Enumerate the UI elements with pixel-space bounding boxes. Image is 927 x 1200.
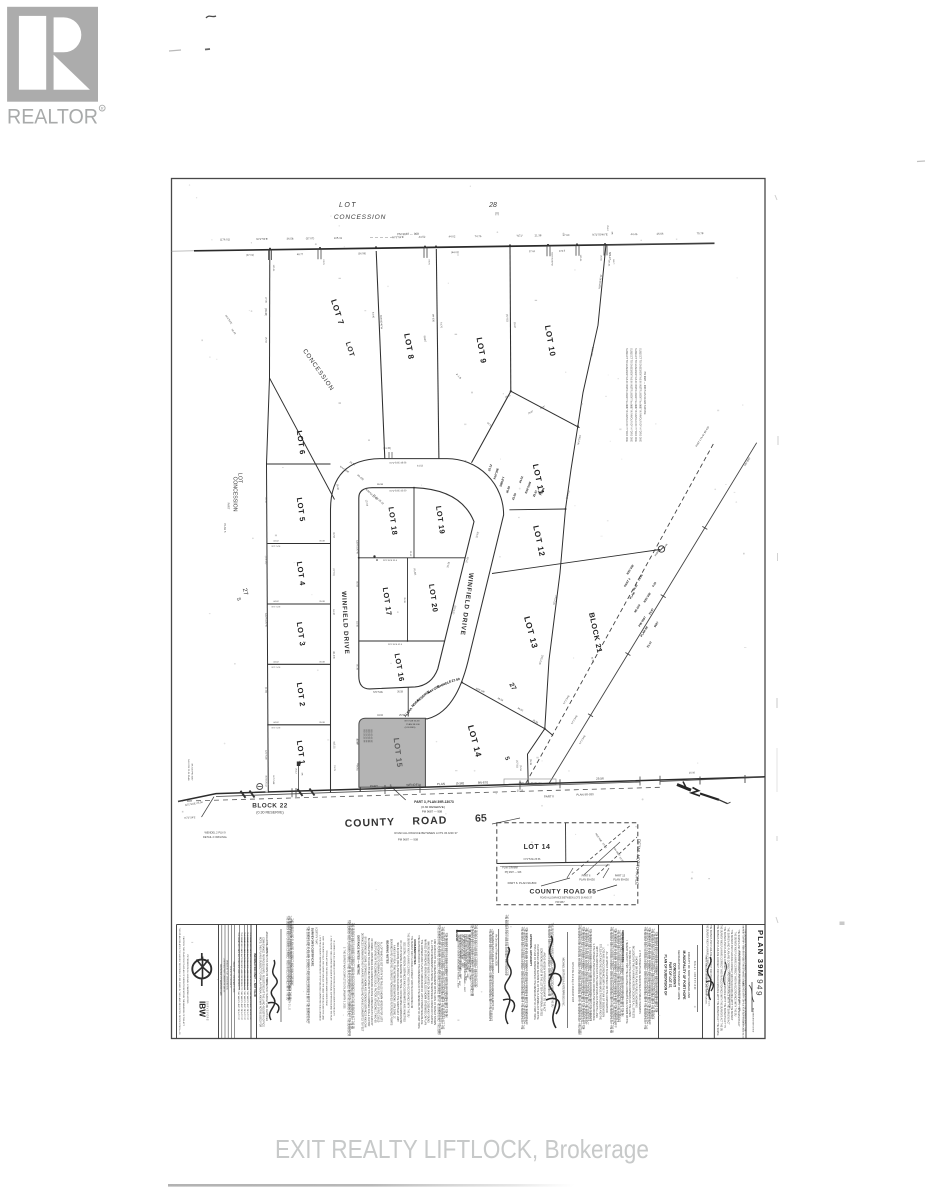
svg-text:2. THE STREETS ARE DEDICATED A: 2. THE STREETS ARE DEDICATED AS PUBLIC H… — [638, 950, 641, 1014]
svg-text:PM 9687 —: PM 9687 — 908 — [398, 838, 419, 842]
svg-text:9R-630: 9R-630 — [332, 651, 334, 659]
svg-text:74.76: 74.76 — [428, 259, 430, 265]
svg-text:PART 13: PART 13 — [615, 874, 626, 878]
svg-text:IS CORRECT IN ACCORDANCE WITH: IS CORRECT IN ACCORDANCE WITH THE REGULA… — [333, 940, 336, 1016]
svg-text:(36.58): (36.58) — [358, 252, 366, 255]
svg-text:(176.01): (176.01) — [220, 237, 230, 241]
svg-text:(37.01): (37.01) — [515, 760, 518, 768]
svg-text:THE SURVEY AND PLAN ARE CORREC: THE SURVEY AND PLAN ARE CORRECT AND IN A… — [291, 918, 294, 986]
svg-text:(0.30 RES): (0.30 RES) — [405, 727, 416, 729]
svg-text:N17°: N17° — [612, 260, 614, 265]
svg-text:(37.07): (37.07) — [306, 236, 315, 240]
svg-text:29.87: 29.87 — [513, 322, 516, 329]
svg-text:CONVEYANCE PURPOSES UNTIL REGI: CONVEYANCE PURPOSES UNTIL REGISTERED AT … — [262, 937, 265, 1027]
svg-text:SEE DETAIL HEREON. DISTANCES: SEE DETAIL HEREON. DISTANCES AND COORDIN… — [402, 942, 405, 1022]
svg-text:THE SURVEY AND PLAN ARE CORREC: THE SURVEY AND PLAN ARE CORRECT AND IN A… — [475, 925, 478, 988]
svg-text:N71°54E 36.58: N71°54E 36.58 — [405, 721, 421, 723]
svg-text:COUNTY ROAD 65: COUNTY ROAD 65 — [530, 889, 597, 896]
svg-text:THE BEARINGS ARE ASTRONOMIC AN: THE BEARINGS ARE ASTRONOMIC AND REFERRED… — [240, 932, 243, 1020]
svg-text:PLAN 99-630: PLAN 99-630 — [579, 878, 595, 882]
svg-text:ROAD ALLOWANCE BETWEEN LOTS: ROAD ALLOWANCE BETWEEN LOTS 36 AND 37 — [394, 831, 458, 835]
svg-text:MUNICIPALITY OF PORT HOPE: MUNICIPALITY OF PORT HOPE — [682, 951, 686, 1001]
svg-text:THE SURVEY AND PLAN ARE CORREC: THE SURVEY AND PLAN ARE CORRECT AND IN A… — [525, 927, 528, 1025]
svg-text:44.02: 44.02 — [273, 662, 279, 664]
svg-text:PM 9687 — 908: PM 9687 — 908 — [397, 232, 419, 236]
svg-text:(37.01): (37.01) — [332, 568, 334, 576]
svg-text:(176.01): (176.01) — [264, 556, 266, 565]
svg-text:COUNTY OF NORTHUMBERLAND: COUNTY OF NORTHUMBERLAND — [687, 952, 691, 998]
svg-text:(37.01): (37.01) — [246, 254, 254, 257]
svg-text:BEARINGS ARE UTM GRID, DERIVED: BEARINGS ARE UTM GRID, DERIVED FROM OBSE… — [390, 939, 393, 1026]
svg-text:1. THE FIELD SURVEY REPRESENTE: 1. THE FIELD SURVEY REPRESENTED BY THIS … — [319, 935, 322, 1022]
svg-text:DETAIL 2 ORIGINAL: DETAIL 2 ORIGINAL — [203, 835, 228, 839]
svg-text:(ii): (ii) — [495, 212, 499, 216]
svg-text:MICHAEL BATTAGLIA ENTERPRISE: MICHAEL BATTAGLIA ENTERPRISES INC. — [562, 958, 565, 1007]
svg-text:27.60: 27.60 — [529, 250, 536, 253]
svg-text:REALTOR: REALTOR — [7, 105, 98, 129]
svg-text:25.12: 25.12 — [295, 768, 297, 774]
svg-text:THE SURVEY AND PLAN ARE CORREC: THE SURVEY AND PLAN ARE CORRECT AND IN A… — [491, 930, 494, 1009]
svg-text:25.56: 25.56 — [355, 765, 357, 771]
svg-text:THE SURVEY AND PLAN ARE CORREC: THE SURVEY AND PLAN ARE CORRECT AND IN A… — [737, 929, 740, 1027]
svg-text:THE SURVEY AND PLAN ARE CORREC: THE SURVEY AND PLAN ARE CORRECT AND IN A… — [352, 923, 355, 1030]
svg-text:PART: PART — [370, 784, 378, 788]
svg-text:R: R — [101, 106, 104, 111]
svg-text:N71°54'E 35.0: N71°54'E 35.0 — [383, 560, 398, 562]
svg-text:25.56: 25.56 — [517, 788, 524, 792]
svg-text:PART II: PART II — [544, 794, 554, 798]
svg-text:PLAN: PLAN — [437, 782, 445, 786]
svg-text:N71°50'40"E: N71°50'40"E — [592, 232, 608, 236]
svg-text:the 2nd day of February 2: the 2nd day of February 2005 — [495, 934, 498, 966]
svg-text:105.31: 105.31 — [608, 260, 610, 267]
svg-text:(0.30 RESERVE): (0.30 RESERVE) — [256, 811, 284, 815]
svg-text:DRAWN BY S.M. CHECKED D: DRAWN BY S.M. CHECKED D.B. — [226, 960, 229, 991]
svg-text:WENDEL 2 PLN 9: WENDEL 2 PLN 9 — [204, 831, 226, 835]
svg-text:LOT: LOT — [339, 202, 357, 209]
svg-text:N71°54'E: N71°54'E — [272, 727, 281, 729]
svg-text:THE SURVEY AND PLAN ARE CORREC: THE SURVEY AND PLAN ARE CORRECT AND IN A… — [734, 932, 737, 1017]
svg-text:CAUTION: THIS PLAN IS NOT A PL: CAUTION: THIS PLAN IS NOT A PLAN OF SUBD… — [182, 936, 185, 1026]
svg-text:105.31: 105.31 — [334, 236, 343, 240]
svg-text:N18°05'40"W: N18°05'40"W — [551, 252, 553, 266]
svg-text:(0.30): (0.30) — [264, 687, 266, 693]
svg-text:35.38: 35.38 — [529, 759, 532, 766]
svg-text:35.38: 35.38 — [319, 662, 325, 664]
svg-text:(5.58): (5.58) — [456, 781, 464, 785]
svg-text:9R: 9R — [301, 773, 303, 776]
svg-text:N71°54'E 45.00: N71°54'E 45.00 — [390, 489, 407, 492]
svg-text:BLOCK 22: BLOCK 22 — [252, 803, 288, 810]
svg-text:25.56: 25.56 — [657, 232, 664, 236]
svg-text:N71°54'E 25.56: N71°54'E 25.56 — [524, 858, 541, 861]
svg-text:MARKED BY STANDARD IRON BARS U: MARKED BY STANDARD IRON BARS UNLESS SHOW… — [423, 939, 426, 1025]
svg-text:RECEIVED AND DEPOSITED: RECEIVED AND DEPOSITED — [752, 1008, 755, 1033]
svg-text:PM 9687 — 908: PM 9687 — 908 — [422, 810, 443, 814]
svg-text:THE SURVEY AND PLAN ARE CORREC: THE SURVEY AND PLAN ARE CORRECT AND IN A… — [551, 923, 554, 1008]
svg-text:PETERBOROUGH LINDSAY 1 CAMP: PETERBOROUGH LINDSAY 1 CAMPBELLFORD — [186, 955, 189, 1004]
svg-text:(35.38): (35.38) — [264, 308, 267, 316]
svg-text:8.: 8. — [390, 784, 393, 788]
svg-text:THE SURVEY AND PLAN ARE CORREC: THE SURVEY AND PLAN ARE CORRECT AND IN A… — [744, 929, 747, 1032]
svg-text:CONCESSION 5: CONCESSION 5 — [673, 963, 677, 987]
svg-text:DATE: DATE — [265, 979, 269, 986]
svg-text:28: 28 — [488, 202, 497, 209]
svg-text:44.02: 44.02 — [377, 715, 383, 717]
svg-text:25.12: 25.12 — [409, 551, 411, 557]
svg-text:44.02: 44.02 — [273, 601, 279, 603]
svg-text:BEARING NOTES: BEARING NOTES — [386, 940, 390, 963]
svg-text:2. THE SURVEY WAS COMPLETED UN: 2. THE SURVEY WAS COMPLETED UNDER MY PER… — [330, 936, 333, 1021]
svg-text:THIS PLAN OF SUBDIVISION OF TH: THIS PLAN OF SUBDIVISION OF THE MUNICIPA… — [533, 944, 536, 1020]
svg-text:65: 65 — [475, 812, 487, 824]
svg-text:(37.01): (37.01) — [505, 314, 508, 322]
svg-text:36.58: 36.58 — [287, 237, 294, 241]
svg-text:THE SURVEY AND PLAN ARE CORREC: THE SURVEY AND PLAN ARE CORRECT AND IN A… — [589, 929, 592, 1022]
svg-text:CONCESSION: CONCESSION — [232, 477, 238, 512]
svg-text:PLAN 99-630: PLAN 99-630 — [613, 878, 629, 882]
svg-text:BY DIVIDING BY 0.3048. DISTAN: BY DIVIDING BY 0.3048. DISTANCES SHOWN A… — [364, 937, 367, 1028]
svg-text:I HEREBY CERTIFY THAT: THE REL: I HEREBY CERTIFY THAT: THE RELATIVE CONS… — [625, 940, 628, 1024]
svg-text:35.38: 35.38 — [319, 541, 325, 543]
svg-text:44.46: 44.46 — [355, 621, 357, 628]
svg-text:MULTIPLYING BY THE COMBINED SC: MULTIPLYING BY THE COMBINED SCALE FACTOR… — [373, 941, 376, 1023]
svg-text:35.38: 35.38 — [264, 497, 266, 504]
svg-text:TITLES ACT AND THE REGULATIONS: TITLES ACT AND THE REGULATIONS MADE THER… — [598, 944, 601, 1020]
svg-text:IBW: IBW — [198, 1001, 207, 1017]
svg-text:COORDINATES TO URBAN ACCURACY: COORDINATES TO URBAN ACCURACY PER SEC 14… — [377, 942, 380, 1023]
svg-text:1. I AM (WE ARE) THE REGISTERE: 1. I AM (WE ARE) THE REGISTERED OWNER(S)… — [628, 947, 631, 1017]
svg-text:THE SURVEY AND PLAN ARE CORREC: THE SURVEY AND PLAN ARE CORRECT AND IN A… — [445, 933, 448, 1018]
svg-text:THE BEARINGS ARE ASTRONOMIC AN: THE BEARINGS ARE ASTRONOMIC AND REFERRED… — [246, 932, 249, 1020]
svg-text:N16 25.12 9R: N16 25.12 9R — [370, 730, 372, 743]
svg-text:SUBJECT TO EASEMENT AS IN: SUBJECT TO EASEMENT AS IN INSTRUMENT No … — [639, 348, 642, 442]
svg-text:WITH THE SURVEYS ACT, THE SURV: WITH THE SURVEYS ACT, THE SURVEYORS ACT,… — [322, 936, 325, 1021]
svg-text:N71°54'E: N71°54'E — [373, 692, 383, 694]
svg-text:44.02: 44.02 — [449, 234, 456, 238]
svg-text:THE CORNERS AND PLAN OF SUBDIV: THE CORNERS AND PLAN OF SUBDIVISION OF L… — [420, 940, 423, 1025]
svg-text:THE SURVEY AND PLAN ARE CORREC: THE SURVEY AND PLAN ARE CORRECT AND IN A… — [723, 927, 726, 1028]
svg-text:N71°: N71° — [517, 234, 523, 238]
svg-text:THE SURVEY AND PLAN ARE CORREC: THE SURVEY AND PLAN ARE CORRECT AND IN A… — [621, 932, 624, 1017]
svg-text:25.56: 25.56 — [600, 255, 602, 261]
svg-text:SURVEYOR'S CERTIFICATE: SURVEYOR'S CERTIFICATE — [311, 928, 315, 967]
svg-text:FILE No 04-118 DISK 27: FILE No 04-118 DISK 27 — [229, 966, 231, 989]
svg-text:25.56: 25.56 — [689, 771, 696, 774]
svg-text:35.38: 35.38 — [319, 601, 325, 603]
svg-text:THE SURVEY AND PLAN ARE CORREC: THE SURVEY AND PLAN ARE CORRECT AND IN A… — [720, 925, 723, 1032]
svg-text:N71°54'E 42.0: N71°54'E 42.0 — [388, 644, 403, 646]
svg-text:N71°54'E: N71°54'E — [256, 237, 268, 241]
svg-text:WITH THE DISTRICT ACT, THE SUR: WITH THE DISTRICT ACT, THE SURVEYORS ACT… — [595, 946, 598, 1018]
svg-text:44.52: 44.52 — [419, 235, 426, 239]
svg-text:ROAD: ROAD — [412, 814, 447, 827]
svg-text:N71°54'E: N71°54'E — [272, 546, 281, 548]
svg-text:N71°54'E: N71°54'E — [272, 667, 281, 669]
svg-text:IS APPROVED UNDER SECTION 51 O: IS APPROVED UNDER SECTION 51 OF THE PLAN… — [536, 944, 539, 1019]
svg-text:35.38: 35.38 — [355, 738, 357, 744]
svg-text:A AND B BY REAL TIME NETWORK O: A AND B BY REAL TIME NETWORK OBSERVATION… — [393, 945, 396, 1019]
svg-text:44.46: 44.46 — [371, 312, 374, 319]
svg-text:THE SURVEY AND PLAN ARE CORREC: THE SURVEY AND PLAN ARE CORRECT AND IN A… — [730, 930, 733, 1021]
svg-text:PLAN 9R-930: PLAN 9R-930 — [576, 792, 594, 797]
svg-text:SUBJECT TO EASEMENT AS IN: SUBJECT TO EASEMENT AS IN INSTRUMENT No … — [625, 348, 628, 442]
svg-text:949: 949 — [754, 979, 764, 997]
svg-text:DISTANCES SHOWN ON THIS PLAN A: DISTANCES SHOWN ON THIS PLAN ARE IN METR… — [361, 933, 364, 1032]
svg-text:105.31: 105.31 — [579, 255, 581, 262]
svg-text:1 REVISED PER COMMENTS J: 1 REVISED PER COMMENTS JAN 05 — [222, 958, 225, 993]
svg-text:N16 25.12 9R: N16 25.12 9R — [363, 730, 365, 743]
svg-text:GEOGRAPHIC TOWNSHIP OF HOPE: GEOGRAPHIC TOWNSHIP OF HOPE — [677, 950, 681, 1000]
svg-text:36.58: 36.58 — [332, 532, 334, 539]
svg-text:(44.02): (44.02) — [451, 251, 459, 254]
svg-text:ALL OF WHICH IS CERTIFIED FOR: ALL OF WHICH IS CERTIFIED FOR THE CORPOR… — [605, 952, 608, 1013]
svg-text:WHERE MONUMENTS WERE PLANTED O: WHERE MONUMENTS WERE PLANTED ON JANUARY … — [427, 941, 430, 1023]
svg-text:THE SURVEY AND PLAN ARE CORREC: THE SURVEY AND PLAN ARE CORRECT AND IN A… — [709, 925, 712, 986]
svg-text:NOTE: THIS PLAN IS SUBJECT TO: NOTE: THIS PLAN IS SUBJECT TO FINAL APPR… — [259, 937, 262, 1028]
svg-text:REVISIONS LOT AMENDED DATE: REVISIONS LOT AMENDED DATE — [219, 964, 222, 996]
svg-text:N16 25.12 9R: N16 25.12 9R — [364, 730, 366, 743]
svg-text:25.56: 25.56 — [399, 715, 405, 717]
svg-text:THE REPRODUCTION OF THE BOUNDA: THE REPRODUCTION OF THE BOUNDARIES OF TH… — [417, 935, 420, 1029]
svg-text:PLAN OF SUBDIVISION OF: PLAN OF SUBDIVISION OF — [664, 955, 668, 996]
svg-text:9R: 9R — [611, 232, 613, 235]
svg-text:PART II: PART II — [582, 874, 591, 878]
svg-text:N71°54'E: N71°54'E — [264, 750, 266, 760]
svg-text:44.46: 44.46 — [332, 609, 334, 616]
svg-text:N16°20E 25.56 PLAN: N16°20E 25.56 PLAN — [187, 759, 190, 781]
svg-text:25.56: 25.56 — [264, 337, 266, 344]
svg-text:35.38: 35.38 — [319, 722, 325, 724]
svg-text:44.02: 44.02 — [273, 722, 279, 724]
svg-text:THE BEARINGS ARE ASTRONOMIC AN: THE BEARINGS ARE ASTRONOMIC AND REFERRED… — [237, 932, 240, 1020]
svg-text:ROAD ALLOWANCE BETWEEN LOTS 36: ROAD ALLOWANCE BETWEEN LOTS 36 AND 37 — [540, 897, 593, 900]
svg-text:INCLUDED ON THIS PLAN AND HERE: INCLUDED ON THIS PLAN AND HEREBY DEDICAT… — [631, 946, 634, 1019]
svg-text:AND VERIFIED BY FIELD MEASUREM: AND VERIFIED BY FIELD MEASUREMENT ON THE… — [433, 939, 436, 1025]
svg-text:N16 25.12 9R: N16 25.12 9R — [368, 730, 370, 743]
svg-text:35.38: 35.38 — [355, 664, 357, 671]
svg-text:74.76: 74.76 — [475, 234, 482, 238]
svg-text:WENDEL: WENDEL — [406, 783, 420, 787]
svg-text:9R-670: 9R-670 — [478, 780, 489, 784]
svg-text:N71°54'E 48.06: N71°54'E 48.06 — [390, 461, 407, 464]
svg-text:SCALE 1 : 1000 5 0 5: SCALE 1 : 1000 5 0 5 10 20 — [693, 961, 696, 990]
svg-text:PLAN 39M: PLAN 39M — [756, 930, 765, 977]
svg-text:PART 6. PLAN 99-800: PART 6. PLAN 99-800 — [508, 881, 537, 885]
svg-text:PLAN GRAMM: PLAN GRAMM — [502, 867, 518, 870]
svg-text:THE SURVEY AND PLAN ARE CORREC: THE SURVEY AND PLAN ARE CORRECT AND IN A… — [506, 915, 509, 976]
svg-text:3. THE STREETS AND BLOCKS ARE: 3. THE STREETS AND BLOCKS ARE CORRECT AN… — [592, 943, 595, 1020]
svg-text:S U R V E Y O R S: S U R V E Y O R S — [206, 1001, 208, 1021]
svg-text:I CERTIFY THAT:: I CERTIFY THAT: — [315, 927, 318, 945]
svg-text:PLAN 9R-630: PLAN 9R-630 — [406, 723, 420, 726]
svg-text:48.77: 48.77 — [297, 253, 304, 256]
svg-text:INFORMATION ONLY — NOT VAL: INFORMATION ONLY — NOT VALID — [253, 953, 257, 997]
svg-text:ALL OF WHICH IS SET OUT IN THE: ALL OF WHICH IS SET OUT IN THE TABLES SH… — [380, 942, 383, 1022]
svg-text:SHOWN ON THIS PLAN AS PUBLIC H: SHOWN ON THIS PLAN AS PUBLIC HIGHWAYS — [635, 956, 638, 1008]
svg-text:74.76: 74.76 — [439, 322, 442, 329]
svg-text:25.56: 25.56 — [596, 776, 604, 780]
svg-text:44.52: 44.52 — [417, 464, 424, 467]
svg-text:CONDITIONS SET OUT IN THE LETT: CONDITIONS SET OUT IN THE LETTER OF APPR… — [539, 948, 542, 1016]
svg-text:MONUMENT NOTES: MONUMENT NOTES — [413, 940, 417, 965]
svg-text:THE SURVEY AND PLAN ARE CORREC: THE SURVEY AND PLAN ARE CORRECT AND IN A… — [655, 932, 658, 1013]
svg-text:9R-630: 9R-630 — [431, 314, 434, 323]
svg-text:SIBLEY: SIBLEY — [608, 252, 611, 261]
svg-text:36.58: 36.58 — [397, 692, 403, 694]
svg-text:THE BEARINGS ARE ASTRONOMIC AN: THE BEARINGS ARE ASTRONOMIC AND REFERRED… — [243, 932, 246, 1020]
svg-text:LOTS ARE IN ACCORDANCE WITH TH: LOTS ARE IN ACCORDANCE WITH THE PLAN OF … — [602, 947, 605, 1017]
svg-text:SUBJECT TO EASEMENT AS IN: SUBJECT TO EASEMENT AS IN INSTRUMENT No … — [634, 348, 637, 442]
svg-text:PROJ 9687 — 908 SCALE 1:1000: PROJ 9687 — 908 SCALE 1:1000 — [232, 962, 235, 993]
svg-text:35.38: 35.38 — [403, 597, 405, 603]
svg-text:44.02: 44.02 — [273, 541, 279, 543]
svg-text:36.58 25.12: 36.58 25.12 — [265, 775, 267, 787]
svg-text:JANUARY 5, 2005: JANUARY 5, 2005 — [265, 931, 269, 953]
svg-text:THE SURVEY AND PLAN ARE CORREC: THE SURVEY AND PLAN ARE CORRECT AND IN A… — [716, 925, 719, 1036]
svg-text:74.76: 74.76 — [333, 765, 335, 772]
svg-text:LOT 14: LOT 14 — [524, 844, 551, 851]
svg-text:105.31: 105.31 — [332, 741, 335, 749]
svg-text:PLAN 5: PLAN 5 — [223, 524, 227, 533]
svg-text:PART 3, PLAN 39R-13073: PART 3, PLAN 39R-13073 — [414, 800, 454, 804]
svg-text:THE BEARINGS ARE ASTRONOMIC AN: THE BEARINGS ARE ASTRONOMIC AND REFERRED… — [249, 932, 252, 1020]
svg-text:36.58: 36.58 — [377, 483, 384, 486]
svg-text:(0.30 RESERVE): (0.30 RESERVE) — [421, 805, 445, 809]
svg-text:SUBJECT TO EASEMENT AS IN: SUBJECT TO EASEMENT AS IN INSTRUMENT No … — [630, 348, 633, 442]
svg-text:75.78: 75.78 — [697, 231, 704, 235]
svg-text:N71°54'E: N71°54'E — [272, 607, 281, 609]
svg-text:THE SURVEY AND PLAN ARE CORREC: THE SURVEY AND PLAN ARE CORRECT AND IN A… — [410, 936, 413, 1009]
svg-text:THIS PLAN RELATES TO SURVEY RE: THIS PLAN RELATES TO SURVEY RECORDS 27-8… — [178, 928, 181, 1036]
svg-text:21.38: 21.38 — [535, 233, 542, 237]
svg-text:ALL OTHER MONUMENTS AS NOTED H: ALL OTHER MONUMENTS AS NOTED HEREON WERE… — [430, 940, 433, 1024]
svg-text:9R-630 PIN 9687: 9R-630 PIN 9687 — [191, 764, 193, 782]
svg-text:174.5: 174.5 — [559, 250, 566, 253]
svg-text:(41.15): (41.15) — [383, 447, 391, 450]
svg-text:BE CONVERTED TO GRID BY MULTIP: BE CONVERTED TO GRID BY MULTIPLYING BY T… — [367, 938, 370, 1027]
svg-text:APPROVAL AUTHORITY: APPROVAL AUTHORITY — [529, 934, 533, 966]
svg-text:EXIT REALTY LIFTLOCK, Brokerag: EXIT REALTY LIFTLOCK, Brokerage — [275, 1134, 649, 1164]
svg-text:CONCESSION: CONCESSION — [334, 214, 386, 221]
svg-text:TITLES ACT AND THE REGULATIONS: TITLES ACT AND THE REGULATIONS MADE UNDE… — [325, 950, 328, 1006]
svg-text:44.46: 44.46 — [631, 232, 638, 236]
svg-text:105.31: 105.31 — [272, 265, 274, 272]
svg-text:DATED the 21st day of JAN: DATED the 21st day of JANUARY 2005 — [571, 962, 574, 1003]
svg-text:N71°54'E: N71°54'E — [184, 815, 195, 820]
svg-text:25.12: 25.12 — [606, 225, 608, 231]
svg-text:PM 9687 — 908 PLAN 9R-630: PM 9687 — 908 PLAN 9R-630 N16°20E — [643, 372, 646, 415]
svg-text:25.56: 25.56 — [519, 765, 521, 772]
svg-text:THE SURVEY AND PLAN ARE CORREC: THE SURVEY AND PLAN ARE CORRECT AND IN A… — [727, 927, 730, 1025]
svg-text:COUNTY: COUNTY — [345, 816, 396, 830]
svg-text:36.58: 36.58 — [355, 581, 357, 588]
svg-text:PART: PART — [227, 503, 231, 510]
svg-text:THE SURVEY AND PLAN ARE CORREC: THE SURVEY AND PLAN ARE CORRECT AND IN A… — [706, 924, 709, 997]
svg-text:OF 0.99961. DISTANCES ARE GRO: OF 0.99961. DISTANCES ARE GROUND AND CAN… — [370, 938, 373, 1025]
svg-text:N16 25.12 9R: N16 25.12 9R — [366, 730, 368, 743]
svg-text:OF LOT 37 HAVING A BEARING OF: OF LOT 37 HAVING A BEARING OF N71°54E. F… — [399, 940, 402, 1024]
svg-text:27.60: 27.60 — [264, 297, 266, 304]
svg-text:PM 9687: PM 9687 — [555, 902, 565, 904]
svg-text:THE SURVEY AND PLAN ARE CORREC: THE SURVEY AND PLAN ARE CORRECT AND IN A… — [307, 926, 310, 1024]
svg-text:5. THE SURVEY WAS COMPLETED ON: 5. THE SURVEY WAS COMPLETED ON JANUARY 5… — [343, 947, 346, 1009]
svg-text:PART OF LOT 37,: PART OF LOT 37, — [668, 962, 672, 988]
svg-text:AND IS HEREBY APPROVED PURSUAN: AND IS HEREBY APPROVED PURSUANT TO THE A… — [543, 952, 546, 1012]
svg-text:NAD 83 (CSRS) (2010), AND ARE: NAD 83 (CSRS) (2010), AND ARE REFERRED T… — [396, 942, 399, 1022]
svg-text:THE SURVEY AND PLAN ARE CORREC: THE SURVEY AND PLAN ARE CORRECT AND IN A… — [407, 933, 410, 1018]
svg-text:74.76: 74.76 — [322, 259, 324, 265]
svg-text:N71°54E: N71°54E — [272, 776, 274, 785]
svg-text:DISTANCE NOTES — METRIC: DISTANCE NOTES — METRIC — [357, 935, 361, 975]
